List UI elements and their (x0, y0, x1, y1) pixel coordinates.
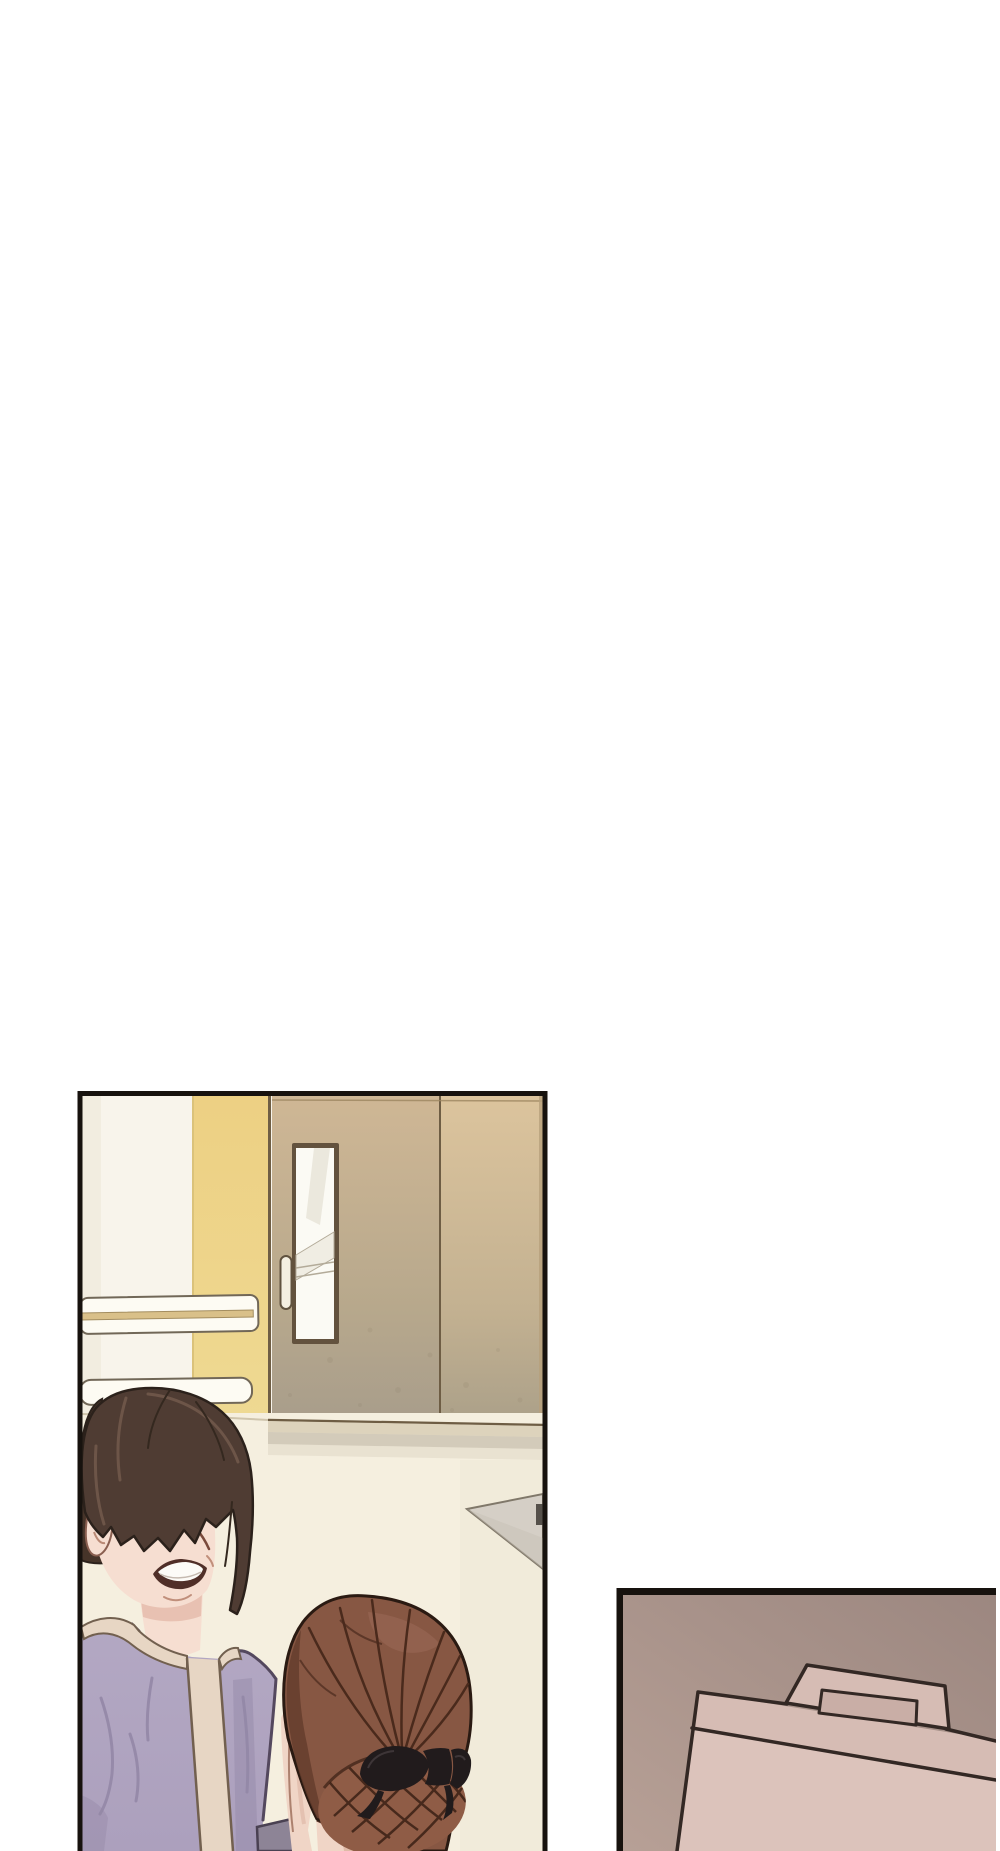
white-wall-shade (81, 1094, 101, 1424)
door-top-line (272, 1100, 543, 1101)
panel-border-top (617, 1588, 997, 1595)
door-right-leaf (440, 1094, 543, 1424)
panel-corridor-scene (80, 1094, 545, 1851)
door-handle (281, 1256, 292, 1309)
comic-page (0, 0, 1000, 1851)
yellow-wall (193, 1094, 268, 1421)
door-window (292, 1143, 339, 1344)
comic-artwork (0, 0, 1000, 1851)
panel-bag-scene (617, 1588, 997, 1851)
handrail-upper (80, 1295, 259, 1334)
panel-border-left (617, 1588, 624, 1851)
girl-back-head (281, 1596, 471, 1851)
